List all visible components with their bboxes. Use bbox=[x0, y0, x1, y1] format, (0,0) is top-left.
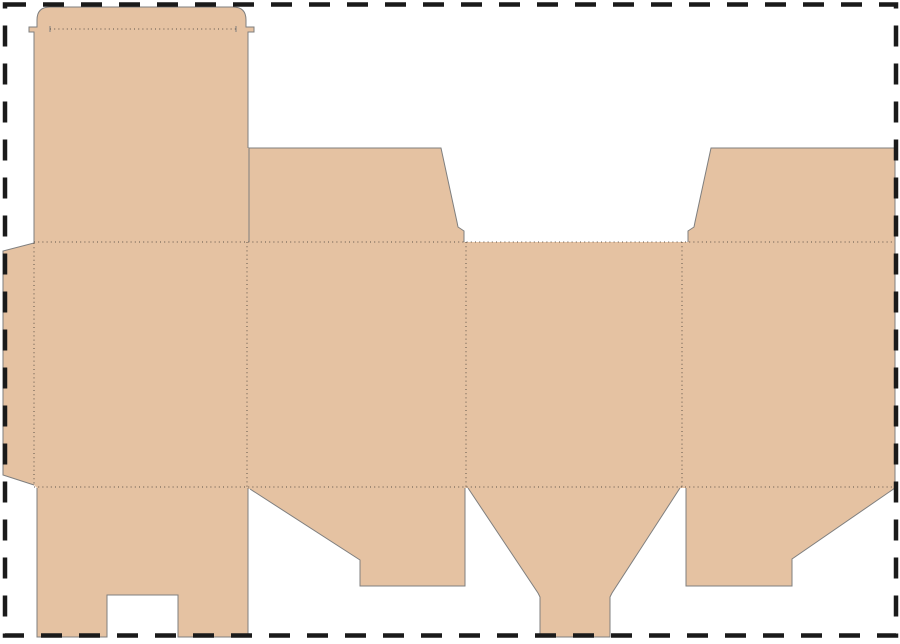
page-canvas bbox=[0, 0, 900, 644]
dieline-drawing bbox=[0, 0, 900, 644]
